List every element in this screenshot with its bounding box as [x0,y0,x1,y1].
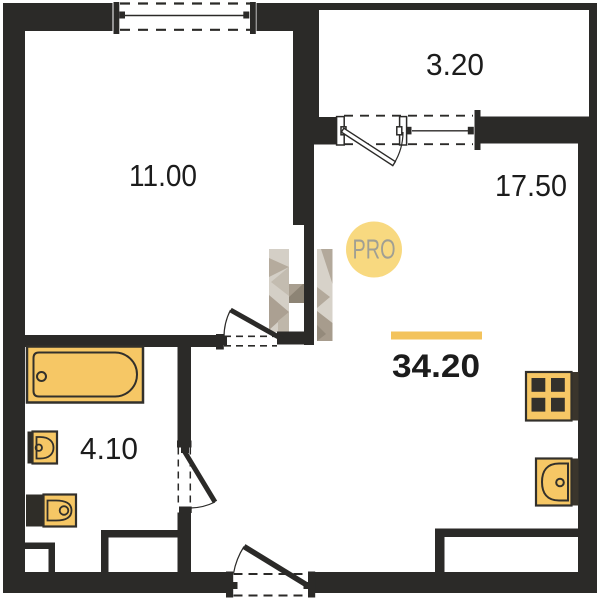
svg-text:3.20: 3.20 [426,47,484,82]
svg-text:17.50: 17.50 [495,168,567,203]
svg-text:PRO: PRO [353,234,396,265]
svg-text:11.00: 11.00 [129,158,197,193]
svg-text:4.10: 4.10 [80,431,138,466]
svg-text:34.20: 34.20 [392,348,480,384]
